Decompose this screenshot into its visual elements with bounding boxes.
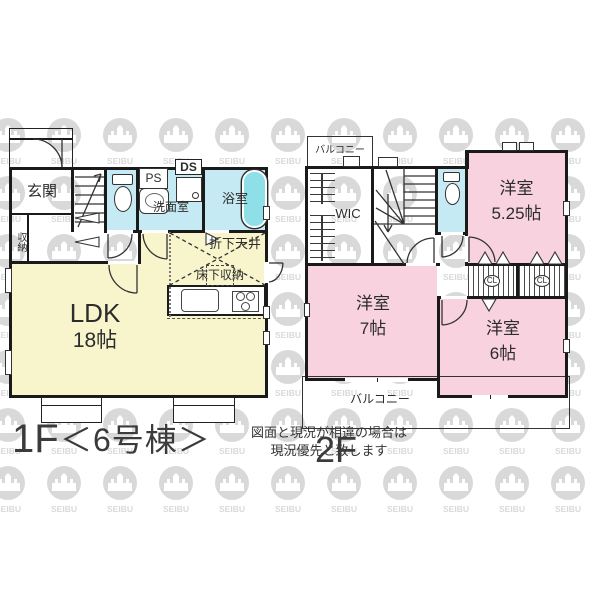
bottom-window bbox=[472, 395, 508, 399]
watermark-logo: SEIBU bbox=[268, 464, 308, 518]
svg-text:SEIBU: SEIBU bbox=[443, 446, 469, 456]
floor2-caption: 2F bbox=[315, 431, 357, 469]
floor1-unit: ＜6号棟＞ bbox=[60, 424, 211, 458]
kitchen-sink bbox=[181, 289, 219, 312]
svg-text:SEIBU: SEIBU bbox=[499, 446, 525, 456]
svg-text:SEIBU: SEIBU bbox=[443, 504, 469, 514]
burner bbox=[236, 292, 245, 301]
bathroom-label: 浴室 bbox=[204, 192, 266, 206]
watermark-logo: SEIBU bbox=[324, 464, 364, 518]
watermark-logo: SEIBU bbox=[268, 174, 308, 228]
watermark-logo: SEIBU bbox=[212, 116, 252, 170]
side-window bbox=[263, 331, 270, 345]
watermark-logo: SEIBU bbox=[268, 290, 308, 344]
toilet-icon bbox=[112, 174, 133, 185]
watermark-logo: SEIBU bbox=[436, 464, 476, 518]
watermark-logo: SEIBU bbox=[492, 464, 532, 518]
hanger-pole bbox=[321, 215, 323, 261]
wall bbox=[27, 213, 29, 264]
storage-label: 収納 bbox=[9, 222, 25, 262]
room525-name-label: 洋室 bbox=[468, 180, 565, 198]
watermark-logo: SEIBU bbox=[0, 464, 28, 518]
svg-text:SEIBU: SEIBU bbox=[331, 504, 357, 514]
svg-text:SEIBU: SEIBU bbox=[0, 504, 21, 514]
ldk-size-label: 18帖 bbox=[55, 330, 135, 352]
balcony-slider bbox=[345, 378, 408, 382]
ldk-door-arc bbox=[108, 264, 138, 294]
entrance-door-arc bbox=[32, 138, 64, 169]
genkan-label: 玄関 bbox=[14, 184, 70, 200]
svg-text:SEIBU: SEIBU bbox=[443, 272, 469, 282]
svg-text:SEIBU: SEIBU bbox=[163, 504, 189, 514]
svg-text:SEIBU: SEIBU bbox=[499, 504, 525, 514]
ps-label: PS bbox=[145, 172, 161, 185]
floor-storage-label: 床下収納 bbox=[191, 269, 249, 282]
counter-front-dashed bbox=[167, 318, 266, 319]
wall bbox=[138, 230, 141, 264]
closet-door-marks bbox=[74, 213, 100, 247]
wic-label: WIC bbox=[325, 207, 371, 221]
floorplan-canvas: SEIBUSEIBUSEIBUSEIBUSEIBUSEIBUSEIBUSEIBU… bbox=[0, 0, 600, 600]
wall bbox=[9, 213, 73, 215]
ldk-name-label: LDK bbox=[55, 300, 135, 327]
svg-text:SEIBU: SEIBU bbox=[387, 504, 413, 514]
room6-name-label: 洋室 bbox=[440, 320, 566, 338]
watermark-logo: SEIBU bbox=[380, 464, 420, 518]
dropped-ceiling-label: 折下天井 bbox=[203, 237, 267, 251]
floor1-caption: 1F bbox=[12, 418, 59, 460]
hanger-rod bbox=[310, 173, 335, 204]
washer-pan bbox=[176, 177, 202, 202]
svg-text:SEIBU: SEIBU bbox=[275, 504, 301, 514]
watermark-logo: SEIBU bbox=[100, 116, 140, 170]
toilet-bowl-icon-2f bbox=[445, 183, 460, 205]
sliding-window bbox=[173, 397, 235, 423]
balcony-door-bump bbox=[343, 156, 360, 167]
washer-drain bbox=[192, 192, 199, 199]
toilet2-door-arc bbox=[441, 235, 464, 258]
svg-text:SEIBU: SEIBU bbox=[219, 504, 245, 514]
wall bbox=[104, 167, 107, 232]
room525-size-label: 5.25帖 bbox=[468, 205, 565, 223]
watermark-logo: SEIBU bbox=[212, 464, 252, 518]
wall bbox=[305, 166, 308, 381]
kitchen-back-door-arc bbox=[268, 262, 285, 283]
toilet-icon-2f bbox=[443, 172, 460, 182]
ds-label: DS bbox=[180, 161, 197, 174]
watermark-logo: SEIBU bbox=[44, 464, 84, 518]
toilet-door-arc bbox=[107, 233, 133, 259]
svg-text:SEIBU: SEIBU bbox=[275, 156, 301, 166]
watermark-logo: SEIBU bbox=[268, 116, 308, 170]
top-window-bump bbox=[378, 157, 398, 167]
hanger-pole bbox=[321, 173, 323, 204]
watermark-logo: SEIBU bbox=[156, 464, 196, 518]
svg-text:SEIBU: SEIBU bbox=[275, 330, 301, 340]
washroom-door-arc bbox=[142, 233, 168, 260]
hanger-rod bbox=[310, 215, 335, 261]
room525-door-arc bbox=[468, 236, 496, 263]
svg-text:SEIBU: SEIBU bbox=[51, 504, 77, 514]
room7-size-label: 7帖 bbox=[308, 320, 438, 338]
svg-text:SEIBU: SEIBU bbox=[275, 214, 301, 224]
room6-size-label: 6帖 bbox=[440, 345, 566, 363]
side-window bbox=[5, 268, 12, 293]
watermark-logo: SEIBU bbox=[100, 464, 140, 518]
stair-void-line bbox=[374, 220, 405, 265]
stove bbox=[232, 291, 259, 312]
toilet-bowl-icon bbox=[114, 186, 132, 212]
svg-text:SEIBU: SEIBU bbox=[107, 156, 133, 166]
watermark-logo: SEIBU bbox=[548, 464, 588, 518]
casement-window bbox=[519, 142, 534, 151]
duct-space: DS bbox=[175, 159, 202, 175]
wall bbox=[466, 150, 568, 153]
burner bbox=[241, 302, 250, 311]
svg-text:SEIBU: SEIBU bbox=[555, 446, 581, 456]
room7-name-label: 洋室 bbox=[308, 295, 438, 313]
svg-text:SEIBU: SEIBU bbox=[219, 156, 245, 166]
svg-text:SEIBU: SEIBU bbox=[555, 504, 581, 514]
svg-text:SEIBU: SEIBU bbox=[275, 388, 301, 398]
washroom-label: 洗面室 bbox=[140, 201, 202, 214]
burner bbox=[246, 292, 255, 301]
svg-text:SEIBU: SEIBU bbox=[107, 504, 133, 514]
casement-window bbox=[502, 142, 517, 151]
balcony-top-label: バルコニー bbox=[307, 146, 373, 157]
side-window bbox=[5, 350, 12, 375]
side-window bbox=[263, 206, 270, 220]
balcony-bottom-label: バルコニー bbox=[330, 393, 430, 406]
pipe-space: PS bbox=[139, 168, 168, 189]
room7-door-arc bbox=[406, 237, 435, 264]
side-window bbox=[263, 306, 270, 319]
